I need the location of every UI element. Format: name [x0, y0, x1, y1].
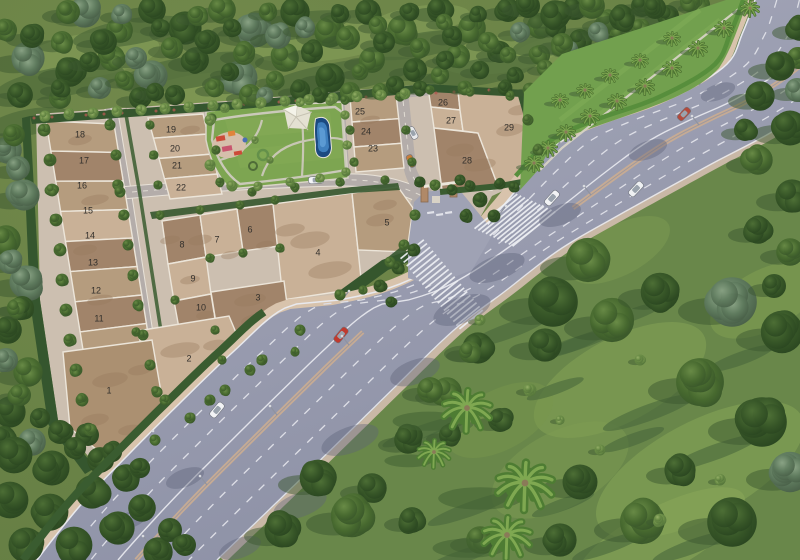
svg-text:15: 15 — [83, 206, 93, 216]
svg-text:12: 12 — [91, 286, 101, 296]
svg-text:1: 1 — [106, 386, 111, 396]
svg-text:8: 8 — [179, 240, 184, 250]
svg-text:27: 27 — [446, 116, 456, 126]
svg-text:10: 10 — [196, 303, 206, 313]
svg-text:17: 17 — [79, 156, 89, 166]
svg-text:18: 18 — [75, 130, 85, 140]
svg-text:9: 9 — [190, 274, 195, 284]
svg-text:21: 21 — [172, 161, 182, 171]
svg-text:26: 26 — [438, 98, 448, 108]
svg-text:2: 2 — [186, 354, 191, 364]
svg-text:14: 14 — [85, 231, 95, 241]
svg-text:4: 4 — [315, 248, 320, 258]
svg-text:24: 24 — [361, 127, 371, 137]
svg-text:23: 23 — [368, 144, 378, 154]
svg-text:20: 20 — [170, 144, 180, 154]
svg-text:16: 16 — [77, 181, 87, 191]
svg-text:25: 25 — [355, 107, 365, 117]
svg-text:7: 7 — [214, 235, 219, 245]
svg-text:19: 19 — [166, 125, 176, 135]
svg-text:5: 5 — [384, 218, 389, 228]
svg-text:13: 13 — [88, 258, 98, 268]
svg-text:11: 11 — [94, 314, 103, 324]
svg-text:22: 22 — [176, 183, 186, 193]
svg-text:3: 3 — [255, 293, 260, 303]
svg-text:6: 6 — [247, 225, 252, 235]
svg-text:28: 28 — [462, 156, 472, 166]
svg-text:29: 29 — [504, 123, 514, 133]
